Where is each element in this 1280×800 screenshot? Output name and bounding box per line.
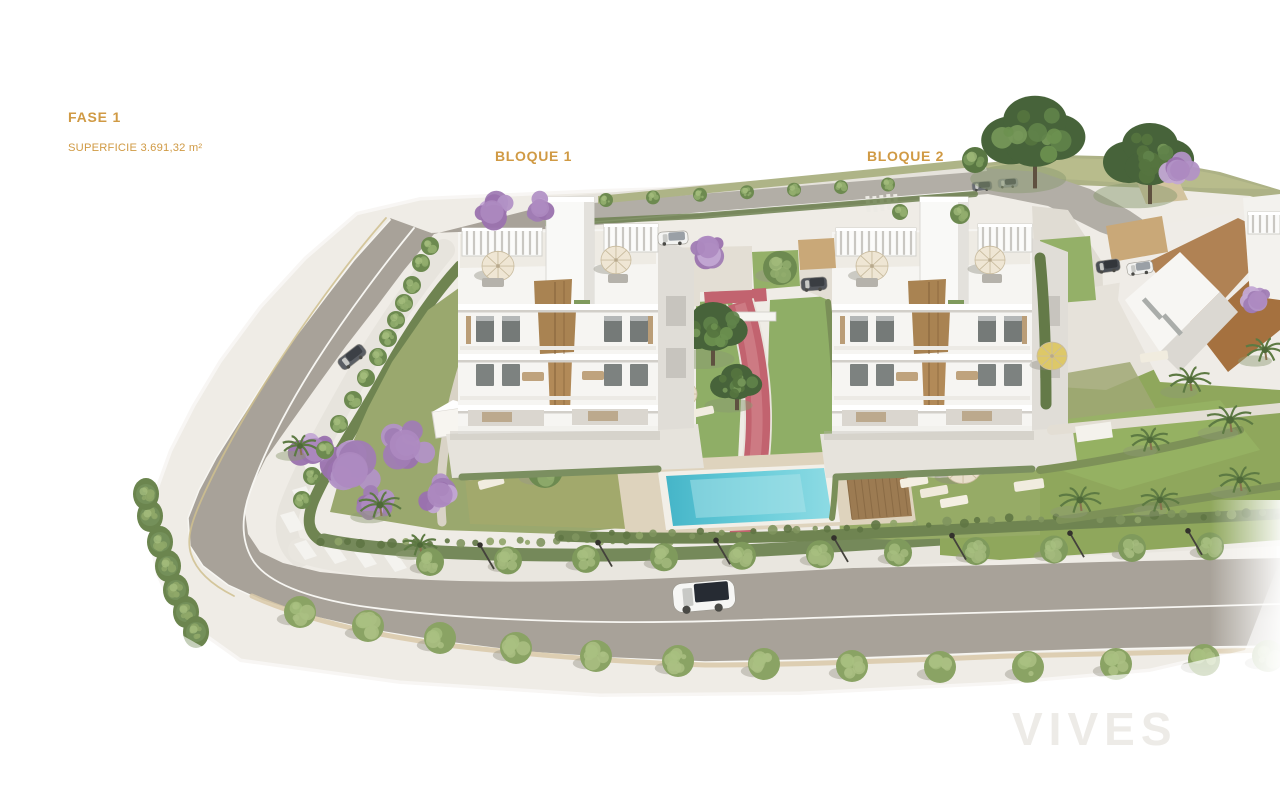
svg-text:SUPERFICIE 3.691,32 m²: SUPERFICIE 3.691,32 m² [68, 142, 202, 154]
svg-text:BLOQUE 2: BLOQUE 2 [867, 148, 944, 164]
svg-text:BLOQUE 1: BLOQUE 1 [495, 148, 572, 164]
svg-text:VIVES: VIVES [1012, 703, 1178, 755]
svg-text:FASE 1: FASE 1 [68, 109, 121, 125]
